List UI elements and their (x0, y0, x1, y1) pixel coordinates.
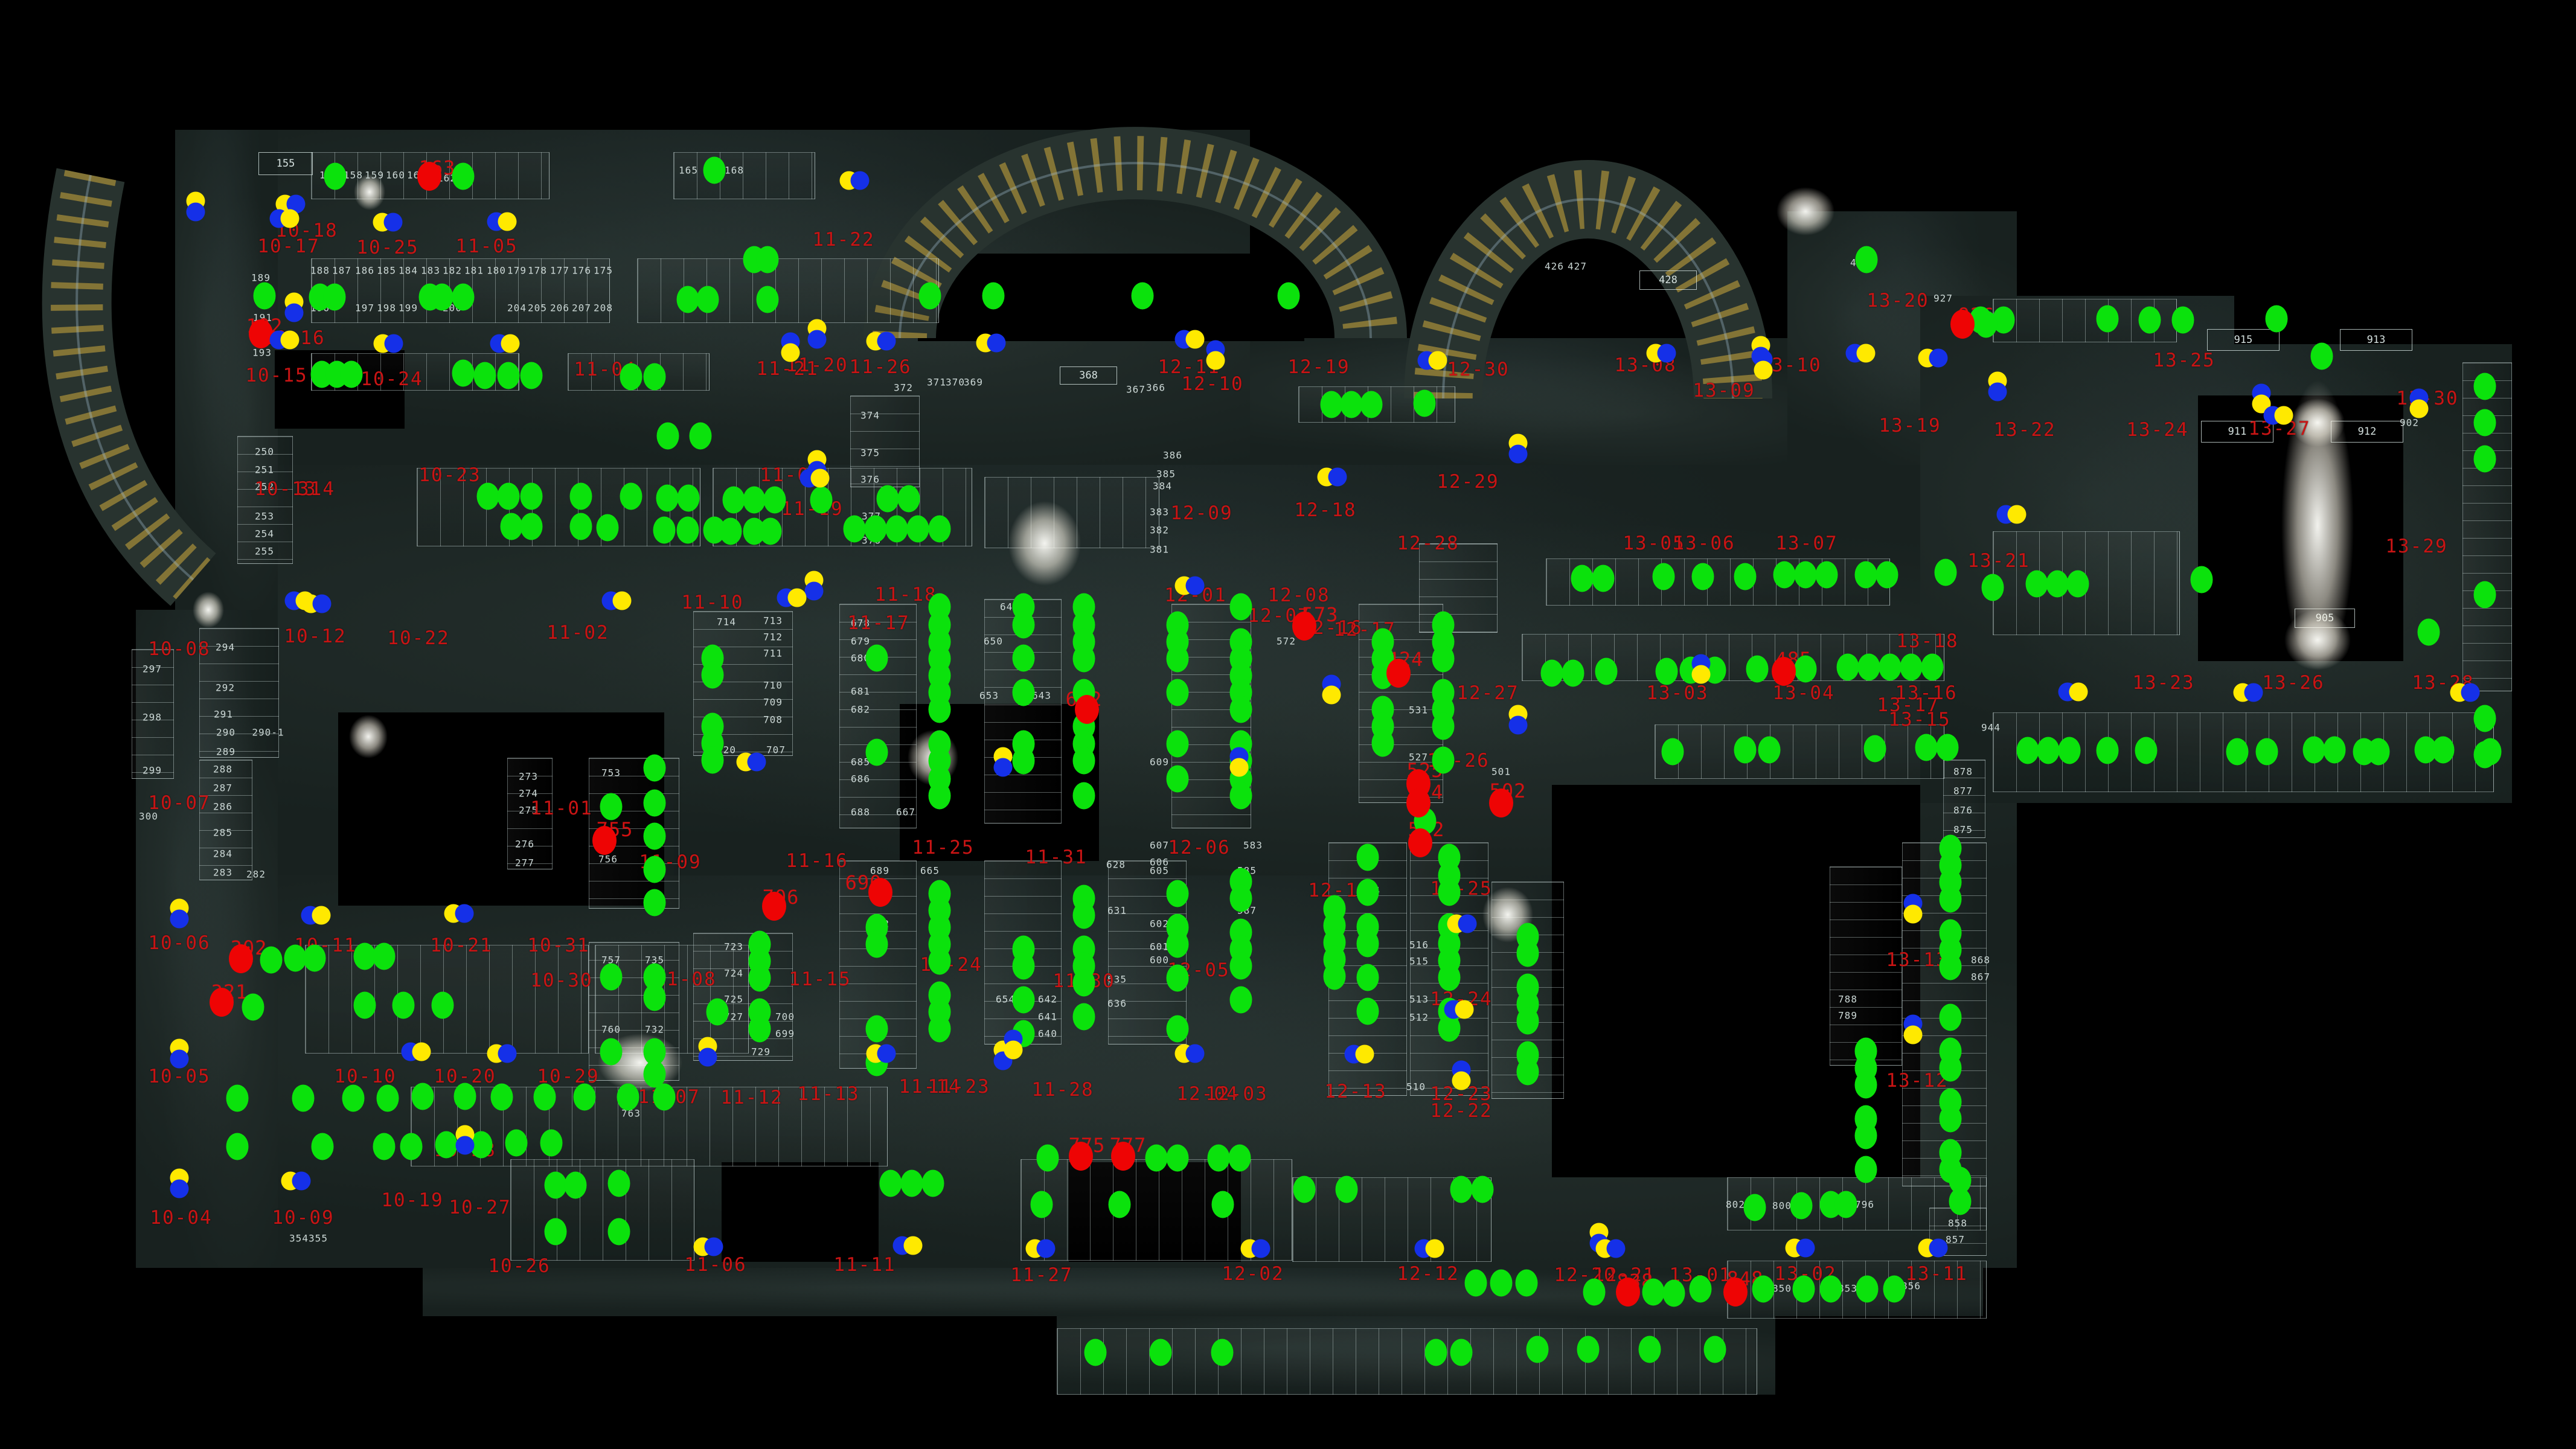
camera-zone-label[interactable]: 12-10 (1181, 373, 1243, 395)
camera-zone-label[interactable]: 10-06 (148, 932, 210, 954)
occupied-stall-marker[interactable] (644, 889, 666, 916)
alert-stall-marker[interactable] (1292, 612, 1316, 641)
camera-zone-label[interactable]: 11-12 (720, 1087, 783, 1108)
alert-stall-marker[interactable] (210, 988, 234, 1017)
occupied-stall-marker[interactable] (2172, 307, 2194, 334)
occupied-stall-marker[interactable] (2474, 581, 2496, 609)
occupied-stall-marker[interactable] (866, 931, 888, 958)
occupied-stall-marker[interactable] (1472, 1176, 1494, 1203)
occupied-stall-marker[interactable] (1855, 561, 1877, 589)
occupied-stall-marker[interactable] (1073, 1003, 1095, 1031)
camera-zone-label[interactable]: 10-31 (527, 935, 589, 956)
occupied-stall-marker[interactable] (1465, 1270, 1487, 1297)
occupied-stall-marker[interactable] (501, 513, 523, 540)
occupied-stall-marker[interactable] (1432, 747, 1455, 774)
camera-zone-label[interactable]: 10-17 (257, 235, 319, 257)
occupied-stall-marker[interactable] (491, 1084, 513, 1111)
occupied-stall-marker[interactable] (1900, 654, 1923, 681)
camera-zone-label[interactable]: 13-18 (1896, 630, 1958, 652)
occupied-stall-marker[interactable] (1132, 283, 1154, 310)
occupied-stall-marker[interactable] (1856, 1276, 1879, 1303)
alert-stall-marker[interactable] (249, 319, 273, 348)
occupied-stall-marker[interactable] (2266, 305, 2288, 333)
occupied-stall-marker[interactable] (690, 423, 712, 450)
occupied-stall-marker[interactable] (2226, 738, 2249, 766)
occupied-stall-marker[interactable] (2432, 737, 2455, 764)
occupied-stall-marker[interactable] (1324, 963, 1346, 990)
occupied-stall-marker[interactable] (1541, 660, 1563, 687)
occupied-stall-marker[interactable] (1935, 559, 1957, 586)
occupied-stall-marker[interactable] (1211, 1339, 1234, 1366)
camera-zone-label[interactable]: 13-23 (2132, 672, 2194, 694)
camera-zone-label[interactable]: 11-23 (928, 1076, 990, 1098)
camera-zone-label[interactable]: 11-11 (833, 1254, 896, 1276)
camera-zone-label[interactable]: 12-13 (1324, 1081, 1386, 1102)
occupied-stall-marker[interactable] (1230, 953, 1252, 980)
occupied-stall-marker[interactable] (2303, 737, 2325, 764)
occupied-stall-marker[interactable] (2017, 737, 2039, 764)
camera-zone-label[interactable]: 10-12 (284, 625, 346, 647)
camera-zone-label[interactable]: 10-24 (360, 368, 423, 390)
occupied-stall-marker[interactable] (521, 362, 543, 389)
occupied-stall-marker[interactable] (1432, 713, 1455, 740)
occupied-stall-marker[interactable] (574, 1084, 596, 1111)
occupied-stall-marker[interactable] (1773, 561, 1796, 589)
occupied-stall-marker[interactable] (1073, 782, 1095, 810)
camera-zone-label[interactable]: 10-05 (148, 1066, 210, 1087)
occupied-stall-marker[interactable] (1790, 1192, 1813, 1220)
occupied-stall-marker[interactable] (2059, 737, 2081, 764)
occupied-stall-marker[interactable] (2067, 571, 2089, 598)
occupied-stall-marker[interactable] (242, 994, 264, 1021)
camera-zone-label[interactable]: 13-22 (1993, 419, 2055, 441)
camera-zone-label[interactable]: 11-28 (1031, 1079, 1094, 1101)
occupied-stall-marker[interactable] (1321, 391, 1343, 418)
occupied-stall-marker[interactable] (1013, 679, 1035, 706)
occupied-stall-marker[interactable] (260, 947, 283, 974)
occupied-stall-marker[interactable] (1734, 563, 1757, 590)
occupied-stall-marker[interactable] (600, 793, 623, 820)
occupied-stall-marker[interactable] (764, 487, 786, 514)
occupied-stall-marker[interactable] (1915, 734, 1938, 761)
occupied-stall-marker[interactable] (1414, 390, 1436, 417)
occupied-stall-marker[interactable] (412, 1083, 434, 1110)
camera-zone-label[interactable]: 12-18 (1294, 499, 1356, 521)
occupied-stall-marker[interactable] (1642, 1279, 1665, 1306)
camera-zone-label[interactable]: 13-12 (1886, 1070, 1948, 1092)
occupied-stall-marker[interactable] (1855, 1156, 1877, 1183)
occupied-stall-marker[interactable] (1516, 1270, 1538, 1297)
occupied-stall-marker[interactable] (1517, 940, 1539, 967)
occupied-stall-marker[interactable] (1230, 885, 1252, 912)
occupied-stall-marker[interactable] (2474, 373, 2496, 400)
occupied-stall-marker[interactable] (1758, 737, 1781, 764)
occupied-stall-marker[interactable] (454, 1083, 476, 1110)
camera-zone-label[interactable]: 10-07 (148, 792, 210, 814)
occupied-stall-marker[interactable] (1855, 1072, 1877, 1099)
occupied-stall-marker[interactable] (608, 1218, 630, 1246)
camera-zone-label[interactable]: 314 (298, 478, 335, 500)
occupied-stall-marker[interactable] (1293, 1176, 1316, 1203)
camera-zone-label[interactable]: 11-05 (455, 235, 517, 257)
occupied-stall-marker[interactable] (1949, 1188, 1972, 1215)
occupied-stall-marker[interactable] (1795, 561, 1817, 589)
occupied-stall-marker[interactable] (644, 823, 666, 850)
occupied-stall-marker[interactable] (498, 483, 520, 510)
occupied-stall-marker[interactable] (702, 662, 724, 689)
occupied-stall-marker[interactable] (1577, 1336, 1600, 1363)
occupied-stall-marker[interactable] (1432, 645, 1455, 673)
occupied-stall-marker[interactable] (540, 1130, 563, 1157)
occupied-stall-marker[interactable] (919, 283, 941, 310)
occupied-stall-marker[interactable] (929, 1016, 951, 1043)
occupied-stall-marker[interactable] (929, 948, 951, 975)
camera-zone-label[interactable]: 12-27 (1456, 682, 1519, 704)
camera-zone-label[interactable]: 10-23 (418, 464, 481, 486)
occupied-stall-marker[interactable] (474, 362, 496, 389)
camera-zone-label[interactable]: 10-08 (148, 638, 210, 660)
alert-stall-marker[interactable] (1489, 788, 1513, 817)
occupied-stall-marker[interactable] (1864, 735, 1886, 763)
occupied-stall-marker[interactable] (545, 1218, 567, 1246)
occupied-stall-marker[interactable] (1167, 1016, 1189, 1043)
occupied-stall-marker[interactable] (1031, 1191, 1053, 1218)
occupied-stall-marker[interactable] (880, 1170, 902, 1197)
camera-zone-label[interactable]: 11-25 (912, 837, 974, 859)
occupied-stall-marker[interactable] (2037, 737, 2060, 764)
occupied-stall-marker[interactable] (226, 1133, 249, 1160)
occupied-stall-marker[interactable] (1692, 563, 1714, 590)
occupied-stall-marker[interactable] (341, 361, 363, 388)
occupied-stall-marker[interactable] (1490, 1270, 1513, 1297)
occupied-stall-marker[interactable] (1037, 1145, 1059, 1172)
occupied-stall-marker[interactable] (1357, 964, 1379, 991)
occupied-stall-marker[interactable] (1656, 658, 1678, 685)
occupied-stall-marker[interactable] (810, 487, 833, 514)
occupied-stall-marker[interactable] (1940, 1055, 1962, 1082)
occupied-stall-marker[interactable] (373, 943, 396, 970)
occupied-stall-marker[interactable] (1357, 998, 1379, 1025)
occupied-stall-marker[interactable] (431, 284, 453, 311)
occupied-stall-marker[interactable] (702, 747, 724, 774)
occupied-stall-marker[interactable] (570, 513, 592, 540)
occupied-stall-marker[interactable] (1167, 931, 1189, 958)
camera-zone-label[interactable]: 13-24 (2126, 419, 2188, 441)
occupied-stall-marker[interactable] (600, 964, 623, 991)
camera-zone-label[interactable]: 10-21 (430, 935, 492, 956)
camera-zone-label[interactable]: 13-03 (1646, 682, 1708, 704)
occupied-stall-marker[interactable] (1592, 565, 1615, 592)
camera-zone-label[interactable]: 11-13 (797, 1083, 859, 1105)
occupied-stall-marker[interactable] (1167, 1145, 1189, 1172)
occupied-stall-marker[interactable] (477, 483, 499, 510)
occupied-stall-marker[interactable] (2026, 571, 2048, 598)
camera-zone-label[interactable]: 11-06 (684, 1254, 746, 1276)
occupied-stall-marker[interactable] (898, 485, 920, 513)
alert-stall-marker[interactable] (229, 944, 253, 973)
occupied-stall-marker[interactable] (697, 286, 719, 313)
occupied-stall-marker[interactable] (2368, 738, 2390, 766)
occupied-stall-marker[interactable] (2046, 571, 2069, 598)
camera-zone-label[interactable]: 12-22 (1430, 1100, 1492, 1122)
camera-zone-label[interactable]: 12-19 (1287, 356, 1350, 378)
occupied-stall-marker[interactable] (2474, 741, 2496, 769)
occupied-stall-marker[interactable] (1793, 1276, 1815, 1303)
occupied-stall-marker[interactable] (1746, 656, 1769, 683)
occupied-stall-marker[interactable] (1073, 747, 1095, 775)
occupied-stall-marker[interactable] (435, 1131, 458, 1159)
camera-zone-label[interactable]: 13-29 (2385, 536, 2447, 557)
occupied-stall-marker[interactable] (1150, 1339, 1172, 1366)
occupied-stall-marker[interactable] (1073, 902, 1095, 929)
occupied-stall-marker[interactable] (312, 1133, 334, 1160)
occupied-stall-marker[interactable] (844, 516, 866, 543)
camera-zone-label[interactable]: 13-21 (1967, 550, 2030, 572)
camera-zone-label[interactable]: 13-25 (2153, 350, 2215, 371)
occupied-stall-marker[interactable] (929, 782, 951, 810)
occupied-stall-marker[interactable] (534, 1084, 556, 1111)
occupied-stall-marker[interactable] (907, 516, 929, 543)
occupied-stall-marker[interactable] (1517, 1058, 1539, 1086)
alert-stall-marker[interactable] (1408, 828, 1432, 857)
occupied-stall-marker[interactable] (901, 1170, 923, 1197)
occupied-stall-marker[interactable] (1940, 1004, 1962, 1031)
camera-zone-label[interactable]: 10-04 (150, 1207, 212, 1229)
occupied-stall-marker[interactable] (1982, 574, 2004, 601)
camera-zone-label[interactable]: 11-02 (546, 622, 609, 644)
alert-stall-marker[interactable] (1075, 695, 1099, 724)
occupied-stall-marker[interactable] (866, 1016, 888, 1043)
occupied-stall-marker[interactable] (1357, 930, 1379, 958)
camera-zone-label[interactable]: 10-30 (530, 970, 592, 991)
occupied-stall-marker[interactable] (521, 483, 543, 510)
alert-stall-marker[interactable] (1772, 657, 1796, 686)
occupied-stall-marker[interactable] (703, 157, 726, 184)
camera-zone-label[interactable]: 11-16 (786, 850, 848, 872)
camera-zone-label[interactable]: 12-30 (1447, 359, 1509, 380)
occupied-stall-marker[interactable] (1073, 970, 1095, 997)
occupied-stall-marker[interactable] (1167, 965, 1189, 992)
alert-stall-marker[interactable] (1723, 1278, 1748, 1307)
occupied-stall-marker[interactable] (1820, 1276, 1842, 1303)
occupied-stall-marker[interactable] (1744, 1194, 1766, 1221)
occupied-stall-marker[interactable] (1013, 645, 1035, 672)
occupied-stall-marker[interactable] (656, 485, 679, 512)
occupied-stall-marker[interactable] (1230, 782, 1252, 810)
occupied-stall-marker[interactable] (1734, 737, 1757, 764)
occupied-stall-marker[interactable] (617, 1084, 639, 1111)
occupied-stall-marker[interactable] (1167, 731, 1189, 758)
occupied-stall-marker[interactable] (706, 999, 729, 1026)
occupied-stall-marker[interactable] (1690, 1276, 1712, 1303)
occupied-stall-marker[interactable] (1341, 391, 1363, 418)
occupied-stall-marker[interactable] (1212, 1191, 1234, 1218)
occupied-stall-marker[interactable] (1583, 1279, 1606, 1306)
camera-zone-label[interactable]: 10-09 (272, 1207, 334, 1229)
occupied-stall-marker[interactable] (1816, 561, 1838, 589)
camera-zone-label[interactable]: 12-02 (1222, 1263, 1284, 1285)
occupied-stall-marker[interactable] (1425, 1339, 1447, 1366)
occupied-stall-marker[interactable] (929, 696, 951, 723)
occupied-stall-marker[interactable] (866, 645, 888, 672)
occupied-stall-marker[interactable] (757, 286, 779, 313)
occupied-stall-marker[interactable] (723, 487, 745, 514)
occupied-stall-marker[interactable] (452, 163, 475, 190)
occupied-stall-marker[interactable] (505, 1130, 528, 1157)
occupied-stall-marker[interactable] (373, 1133, 396, 1160)
camera-zone-label[interactable]: 13-09 (1693, 380, 1755, 401)
occupied-stall-marker[interactable] (1562, 660, 1584, 687)
occupied-stall-marker[interactable] (678, 485, 700, 512)
occupied-stall-marker[interactable] (1438, 1015, 1461, 1042)
occupied-stall-marker[interactable] (1835, 1191, 1857, 1218)
occupied-stall-marker[interactable] (565, 1172, 587, 1199)
occupied-stall-marker[interactable] (1450, 1176, 1473, 1203)
occupied-stall-marker[interactable] (866, 739, 888, 766)
alert-stall-marker[interactable] (1406, 788, 1431, 817)
occupied-stall-marker[interactable] (886, 516, 908, 543)
occupied-stall-marker[interactable] (644, 755, 666, 782)
occupied-stall-marker[interactable] (1167, 880, 1189, 907)
occupied-stall-marker[interactable] (749, 965, 771, 992)
occupied-stall-marker[interactable] (226, 1085, 249, 1112)
occupied-stall-marker[interactable] (324, 284, 346, 311)
occupied-stall-marker[interactable] (1662, 738, 1684, 766)
occupied-stall-marker[interactable] (1940, 1105, 1962, 1133)
camera-zone-label[interactable]: 13-07 (1775, 533, 1837, 554)
camera-zone-label[interactable]: 13-15 (1888, 709, 1950, 731)
camera-zone-label[interactable]: 11-31 (1025, 846, 1087, 868)
occupied-stall-marker[interactable] (2135, 737, 2158, 764)
camera-zone-label[interactable]: 11-10 (681, 592, 743, 613)
alert-stall-marker[interactable] (1616, 1278, 1640, 1307)
occupied-stall-marker[interactable] (2139, 307, 2161, 334)
camera-zone-label[interactable]: 11-15 (789, 968, 851, 990)
camera-zone-label[interactable]: 11-27 (1010, 1264, 1072, 1286)
occupied-stall-marker[interactable] (653, 1084, 676, 1111)
occupied-stall-marker[interactable] (1450, 1339, 1473, 1366)
alert-stall-marker[interactable] (1386, 659, 1411, 688)
occupied-stall-marker[interactable] (1167, 645, 1189, 673)
occupied-stall-marker[interactable] (2474, 409, 2496, 437)
camera-zone-label[interactable]: 11-22 (812, 229, 874, 251)
occupied-stall-marker[interactable] (2191, 566, 2213, 593)
occupied-stall-marker[interactable] (644, 984, 666, 1011)
occupied-stall-marker[interactable] (1109, 1191, 1131, 1218)
occupied-stall-marker[interactable] (1073, 645, 1095, 673)
occupied-stall-marker[interactable] (2097, 305, 2119, 333)
occupied-stall-marker[interactable] (254, 283, 276, 310)
occupied-stall-marker[interactable] (597, 514, 619, 542)
occupied-stall-marker[interactable] (324, 163, 347, 190)
occupied-stall-marker[interactable] (1940, 886, 1962, 913)
occupied-stall-marker[interactable] (608, 1170, 630, 1197)
occupied-stall-marker[interactable] (1145, 1145, 1168, 1172)
occupied-stall-marker[interactable] (657, 423, 679, 450)
occupied-stall-marker[interactable] (1595, 658, 1618, 685)
occupied-stall-marker[interactable] (1752, 1276, 1775, 1303)
alert-stall-marker[interactable] (1950, 310, 1975, 339)
camera-zone-label[interactable]: 12-09 (1170, 502, 1232, 524)
occupied-stall-marker[interactable] (1837, 654, 1859, 681)
occupied-stall-marker[interactable] (1372, 730, 1394, 757)
alert-stall-marker[interactable] (592, 826, 617, 855)
occupied-stall-marker[interactable] (2256, 738, 2278, 766)
camera-zone-label[interactable]: 11-01 (530, 798, 592, 819)
occupied-stall-marker[interactable] (1704, 1336, 1726, 1363)
occupied-stall-marker[interactable] (2324, 737, 2346, 764)
occupied-stall-marker[interactable] (749, 1016, 771, 1043)
camera-zone-label[interactable]: 12-28 (1397, 533, 1459, 554)
occupied-stall-marker[interactable] (1438, 879, 1461, 906)
occupied-stall-marker[interactable] (1858, 654, 1880, 681)
occupied-stall-marker[interactable] (2474, 705, 2496, 732)
occupied-stall-marker[interactable] (1975, 311, 1998, 338)
camera-zone-label[interactable]: 11-17 (847, 612, 909, 634)
alert-stall-marker[interactable] (1111, 1142, 1135, 1171)
camera-zone-label[interactable]: 10-19 (381, 1189, 443, 1211)
occupied-stall-marker[interactable] (1940, 953, 1962, 980)
occupied-stall-marker[interactable] (400, 1133, 423, 1160)
occupied-stall-marker[interactable] (304, 945, 326, 972)
occupied-stall-marker[interactable] (1013, 747, 1035, 775)
alert-stall-marker[interactable] (762, 892, 786, 921)
occupied-stall-marker[interactable] (929, 516, 951, 543)
occupied-stall-marker[interactable] (1921, 654, 1944, 681)
occupied-stall-marker[interactable] (1013, 612, 1035, 639)
occupied-stall-marker[interactable] (432, 992, 454, 1019)
occupied-stall-marker[interactable] (1527, 1336, 1549, 1363)
camera-zone-label[interactable]: 11-26 (849, 356, 911, 378)
occupied-stall-marker[interactable] (1883, 1276, 1906, 1303)
occupied-stall-marker[interactable] (720, 518, 742, 545)
occupied-stall-marker[interactable] (452, 360, 475, 387)
occupied-stall-marker[interactable] (743, 487, 766, 514)
occupied-stall-marker[interactable] (877, 485, 899, 513)
camera-zone-label[interactable]: 12-29 (1437, 471, 1499, 493)
occupied-stall-marker[interactable] (653, 517, 676, 544)
occupied-stall-marker[interactable] (1639, 1336, 1661, 1363)
occupied-stall-marker[interactable] (1663, 1280, 1685, 1307)
occupied-stall-marker[interactable] (644, 363, 666, 391)
occupied-stall-marker[interactable] (2097, 737, 2119, 764)
occupied-stall-marker[interactable] (292, 1085, 315, 1112)
camera-zone-label[interactable]: 12-03 (1205, 1083, 1267, 1105)
occupied-stall-marker[interactable] (1167, 679, 1189, 706)
occupied-stall-marker[interactable] (1517, 1008, 1539, 1035)
camera-zone-label[interactable]: 13-11 (1905, 1263, 1967, 1285)
occupied-stall-marker[interactable] (677, 286, 699, 313)
occupied-stall-marker[interactable] (1229, 1145, 1251, 1172)
occupied-stall-marker[interactable] (570, 483, 592, 510)
camera-zone-label[interactable]: 13-06 (1673, 533, 1735, 554)
occupied-stall-marker[interactable] (521, 513, 543, 540)
alert-stall-marker[interactable] (1069, 1142, 1093, 1171)
camera-zone-label[interactable]: 13-16 (1895, 682, 1957, 704)
occupied-stall-marker[interactable] (1795, 656, 1817, 683)
camera-zone-label[interactable]: 10-25 (356, 237, 418, 258)
camera-zone-label[interactable]: 10-22 (387, 627, 449, 649)
camera-zone-label[interactable]: 10-27 (449, 1197, 511, 1218)
occupied-stall-marker[interactable] (1855, 1122, 1877, 1150)
occupied-stall-marker[interactable] (644, 790, 666, 817)
occupied-stall-marker[interactable] (2418, 619, 2440, 646)
occupied-stall-marker[interactable] (677, 517, 699, 544)
occupied-stall-marker[interactable] (1208, 1145, 1230, 1172)
occupied-stall-marker[interactable] (1336, 1176, 1358, 1203)
occupied-stall-marker[interactable] (1167, 766, 1189, 793)
camera-zone-label[interactable]: 13-26 (2262, 672, 2324, 694)
